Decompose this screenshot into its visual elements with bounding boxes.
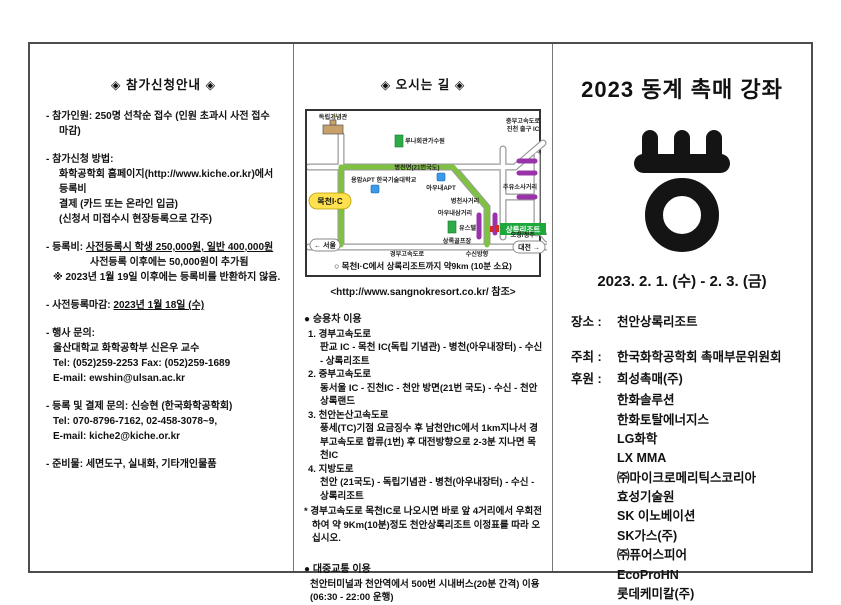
venue-value: 천안상록리조트 [617,313,698,332]
deadline-prefix: - 사전등록마감: [46,300,113,311]
map-label-gas-cross: 주유소사거리 [503,183,537,191]
transit-section-header: ● 대중교통 이용 [304,560,544,575]
host-row: 주최 : 한국화학공학회 촉매부문위원회 [571,348,797,367]
route-2-desc: 동서울 IC - 진천IC - 천안 방면(21번 국도) - 수신 - 천안상… [320,382,544,409]
sponsor-item: LX MMA [617,449,797,468]
map-label-youth-hostel: 유스텔 [459,224,476,232]
map-label-byeongcheon-road: 병천면(21번국도) [394,164,439,172]
route-4: 4. 지방도로 천안 (21국도) - 독립기념관 - 병천(아우내장터) - … [308,463,544,503]
sponsor-item: ㈜마이크로메리틱스코리아 [617,469,797,488]
sponsor-item: EcoProHN [617,566,797,585]
sponsor-label: 후원 : [571,370,617,389]
svg-text:목천I·C: 목천I·C [317,196,343,206]
registration-title: ◈ 참가신청안내 ◈ [46,74,281,93]
registration-column: ◈ 참가신청안내 ◈ - 참가인원: 250명 선착순 접수 (인원 초과시 사… [30,44,293,571]
daejeon-badge: 대전 → [513,241,545,253]
apply-line1: 화학공학회 홈페이지(http://www.kiche.or.kr)에서 등록비 [46,167,281,197]
brochure-sheet: ◈ 참가신청안내 ◈ - 참가인원: 250명 선착순 접수 (인원 초과시 사… [28,42,813,573]
fee-refund-note: ※ 2023년 1월 19일 이후에는 등록비를 반환하지 않음. [46,270,281,285]
map-label-jungbu2: 진천 출구 IC [507,125,540,133]
map-label-aunae-apt: 아우내APT [426,184,456,192]
sponsor-item: 희성촉매(주) [617,370,683,389]
event-contact-head: - 행사 문의: [46,326,281,341]
fee-amounts: 사전등록시 학생 250,000원, 일반 400,000원 [86,242,273,253]
svg-text:← 서울: ← 서울 [314,241,336,250]
directions-column: ◈ 오시는 길 ◈ [293,44,553,571]
map-label-susin: 수신방향 [466,250,489,258]
capacity-block: - 참가인원: 250명 선착순 접수 (인원 초과시 사전 접수 마감) [46,109,281,139]
logo-ring [645,178,719,252]
sponsor-item: LG화학 [617,430,797,449]
catalysis-society-logo [634,130,730,252]
map-label-golf: 상록골프장 [443,237,472,245]
title-column: 2023 동계 촉매 강좌 2023. 2. 1. (수) - 2. 3. (금… [553,44,811,571]
map-labels: 독립기념관 루나회관가수원 병천면(21번국도) 용암APT 한국기술대학교 아… [319,113,541,258]
sponsor-item: 한화솔루션 [617,391,797,410]
deadline-date: 2023년 1월 18일 (수) [113,300,204,311]
deadline-block: - 사전등록마감: 2023년 1월 18일 (수) [46,298,281,313]
sponsor-item: SK가스(주) [617,527,797,546]
sponsor-item: 효성기술원 [617,488,797,507]
apply-line2: 결제 (카드 또는 온라인 입금) [46,197,281,212]
map-caption: ○ 목천I·C에서 상록리조트까지 약9km (10분 소요) [307,258,539,275]
route-4-desc: 천안 (21국도) - 독립기념관 - 병천(아우내장터) - 수신 - 상록리… [320,476,544,503]
route-3-num: 3. [308,410,316,421]
route-2-name: 중부고속도로 [319,369,371,380]
map: 목천I·C 상록리조트 ← 서울 대전 → [305,109,541,277]
route-2: 2. 중부고속도로 동서울 IC - 진천IC - 천안 방면(21번 국도) … [308,368,544,408]
route-3-desc: 풍세(TC)기점 요금징수 후 남천안IC에서 1km지나서 경부고속도로 합류… [320,422,544,462]
apply-line3: (신청서 미접수시 현장등록으로 간주) [46,212,281,227]
route-3: 3. 천안논산고속도로 풍세(TC)기점 요금징수 후 남천안IC에서 1km지… [308,409,544,463]
fee-line2: 사전등록 이후에는 50,000원이 추가됨 [46,255,281,270]
map-svg: 목천I·C 상록리조트 ← 서울 대전 → [307,111,547,258]
venue-row: 장소 : 천안상록리조트 [571,313,797,332]
event-contact-email: E-mail: ewshin@ulsan.ac.kr [46,371,281,386]
event-dates: 2023. 2. 1. (수) - 2. 3. (금) [567,270,797,291]
apply-method-block: - 참가신청 방법: 화학공학회 홈페이지(http://www.kiche.o… [46,152,281,227]
host-label: 주최 : [571,348,617,367]
car-section-header: ● 승용차 이용 [304,310,544,325]
reg-contact-head: - 등록 및 결제 문의: 신승현 (한국화학공학회) [46,399,281,414]
event-title: 2023 동계 촉매 강좌 [567,72,797,104]
route-2-num: 2. [308,369,316,380]
sponsor-row: 후원 : 희성촉매(주) [571,370,797,389]
sponsor-item: 한화토탈에너지스 [617,411,797,430]
mokcheon-ic-badge: 목천I·C [309,193,351,209]
reg-contact-block: - 등록 및 결제 문의: 신승현 (한국화학공학회) Tel: 070-879… [46,399,281,444]
reg-contact-tel: Tel: 070-8796-7162, 02-458-3078~9, [46,414,281,429]
map-label-ochang: 오창/청주 [511,231,536,239]
apply-head: - 참가신청 방법: [46,152,281,167]
route-3-name: 천안논산고속도로 [319,410,389,421]
route-1-name: 경부고속도로 [319,329,371,340]
map-label-byeongcheon-cross: 병천사거리 [451,197,480,205]
event-contact-name: 울산대학교 화학공학부 신은우 교수 [46,341,281,356]
route-1-num: 1. [308,329,316,340]
route-1-desc: 판교 IC - 목천 IC(독립 기념관) - 병천(아우내장터) - 수신 -… [320,341,544,368]
event-contact-block: - 행사 문의: 울산대학교 화학공학부 신은우 교수 Tel: (052)25… [46,326,281,386]
sponsor-item: ㈜퓨어스피어 [617,546,797,565]
map-label-memorial: 독립기념관 [319,113,348,121]
supplies-block: - 준비물: 세면도구, 실내화, 기타개인물품 [46,457,281,472]
logo-bar [634,154,730,173]
route-4-num: 4. [308,464,316,475]
car-note: * 경부고속도로 목천IC로 나오시면 바로 앞 4거리에서 우회전하여 약 9… [304,505,544,545]
route-4-name: 지방도로 [319,464,354,475]
host-value: 한국화학공학회 촉매부문위원회 [617,348,781,367]
svg-text:대전 →: 대전 → [518,243,540,252]
venue-label: 장소 : [571,313,617,332]
youth-hostel-icon [448,221,456,233]
resort-url: <http://www.sangnokresort.co.kr/ 참조> [302,283,544,298]
apt-icon [437,173,445,181]
luna-icon [395,135,403,147]
reg-contact-email: E-mail: kiche2@kiche.or.kr [46,429,281,444]
fee-prefix: - 등록비: [46,242,86,253]
capacity-text: - 참가인원: 250명 선착순 접수 (인원 초과시 사전 접수 마감) [46,109,281,139]
route-1: 1. 경부고속도로 판교 IC - 목천 IC(독립 기념관) - 병천(아우내… [308,328,544,368]
fee-block: - 등록비: 사전등록시 학생 250,000원, 일반 400,000원 사전… [46,240,281,285]
map-label-apt-univ: 용암APT 한국기술대학교 [351,176,417,184]
directions-title: ◈ 오시는 길 ◈ [302,74,544,93]
supplies-text: - 준비물: 세면도구, 실내화, 기타개인물품 [46,457,281,472]
seoul-badge: ← 서울 [310,239,340,251]
event-info: 장소 : 천안상록리조트 주최 : 한국화학공학회 촉매부문위원회 후원 : 희… [571,313,797,604]
map-label-gyeongbu: 경부고속도로 [390,250,424,258]
map-label-luna: 루나회관가수원 [405,137,445,145]
event-contact-tel: Tel: (052)259-2253 Fax: (052)259-1689 [46,356,281,371]
school-icon [371,185,379,193]
sponsor-item: SK 이노베이션 [617,507,797,526]
map-label-aunae-cross: 아우내삼거리 [438,209,472,217]
transit-desc: 천안터미널과 천안역에서 500번 시내버스(20분 간격) 이용 (06:30… [310,578,544,605]
map-label-jungbu1: 중부고속도로 [506,117,540,125]
